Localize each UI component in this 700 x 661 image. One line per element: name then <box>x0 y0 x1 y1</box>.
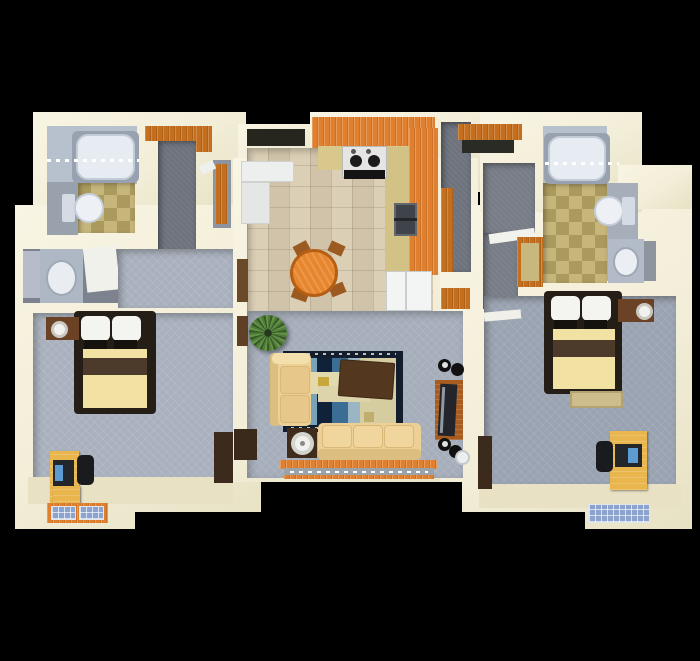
sofa-sectional-cushion-1 <box>280 366 310 394</box>
sofa-main-front <box>318 449 421 460</box>
speaker-2 <box>451 363 464 376</box>
stove-burner-1 <box>350 155 362 167</box>
coffee-table <box>338 359 395 400</box>
vanity-right-sink <box>613 247 639 277</box>
hall-right-shelf-shadow <box>462 140 514 153</box>
bed-left-stripe <box>83 358 147 375</box>
doormat-left-1 <box>51 506 76 520</box>
bed-right-rug <box>570 391 623 408</box>
bed-right-spread <box>553 329 615 389</box>
wall-art-brown <box>237 316 248 346</box>
end-table-lamp-center <box>300 441 305 446</box>
wardrobe-right <box>478 436 492 489</box>
wall-cabinet-brown <box>237 259 248 302</box>
rug-accent-2 <box>364 412 374 422</box>
shoe-cabinet-dark <box>234 429 257 460</box>
dresser-left <box>214 432 233 483</box>
doormat-left-2 <box>79 506 104 520</box>
bed-left-fold-2 <box>114 340 137 349</box>
vanity-right-side <box>644 241 656 281</box>
speaker-cone-1 <box>442 362 448 368</box>
laundry-shelf-low <box>441 288 470 309</box>
toilet-left-bowl <box>74 193 104 223</box>
closet-notch-interior <box>247 129 305 146</box>
kitchen-counter-orange-right <box>409 128 438 275</box>
fridge <box>386 271 432 311</box>
monitor-right-screen <box>628 448 638 463</box>
cutout-bottom-left <box>135 512 261 530</box>
vanity-side-panel <box>23 251 40 298</box>
doormat-right <box>588 504 650 523</box>
bed-left-pillow-2 <box>112 316 141 341</box>
stove-knob-2 <box>366 149 371 154</box>
speaker-ball <box>455 450 470 465</box>
vanity-sink <box>46 260 77 296</box>
dining-table <box>290 249 338 297</box>
bed-right-pillow-1 <box>551 296 580 321</box>
bed-left-fold-1 <box>84 340 107 349</box>
closet-left-walkin-floor <box>158 140 196 252</box>
shower-rod-right <box>545 162 619 165</box>
balcony-ledge-dashes <box>290 471 428 473</box>
toilet-right-tank <box>622 197 635 225</box>
closet-left-shelf-side <box>196 126 212 152</box>
bed-right-stripe <box>553 340 615 357</box>
bed-right-fold-2 <box>584 320 607 329</box>
sofa-main-cushion-3 <box>384 425 414 448</box>
sofa-sectional-cushion-2 <box>280 395 310 423</box>
balcony-wood-low <box>284 475 434 479</box>
stove-front <box>344 170 385 179</box>
sofa-sectional-arm <box>272 353 310 364</box>
kitchen-sink-divider <box>394 218 417 221</box>
desk-chair-right <box>596 441 613 472</box>
toilet-right-bowl <box>594 196 624 226</box>
vanity-door-leaf <box>83 245 120 292</box>
hall-left-floor <box>118 249 233 308</box>
kitchen-counter-white-top <box>241 161 294 182</box>
cutout-corner-right <box>440 482 462 513</box>
stove-burner-2 <box>368 155 380 167</box>
hall-right-floor-upper <box>483 163 535 233</box>
shower-rod-left <box>47 159 139 162</box>
bedroom-right-floor-tan <box>479 484 681 508</box>
speaker-cone-3 <box>442 441 448 447</box>
lamp-left <box>51 321 68 338</box>
hall-right-shelf <box>458 124 522 140</box>
bath-right-cabinet-inner <box>521 243 539 281</box>
lamp-right <box>636 303 653 320</box>
kitchen-counter-white-side <box>241 182 270 224</box>
desk-chair-left <box>77 455 94 485</box>
laundry-shelf-strip <box>441 188 453 272</box>
bed-right-fold-1 <box>554 320 577 329</box>
floorplan-stage <box>0 0 700 661</box>
stove-knob-1 <box>351 149 356 154</box>
bed-right-pillow-2 <box>582 296 611 321</box>
sofa-main-cushion-2 <box>353 425 383 448</box>
bathtub-left <box>76 134 135 180</box>
bathtub-right <box>548 136 606 181</box>
bath-right-tile-floor <box>543 183 607 283</box>
cutout-bottom-right <box>440 512 585 530</box>
monitor-left-screen <box>55 465 63 481</box>
sofa-main-cushion-1 <box>322 425 352 448</box>
closet-b-shelf <box>215 164 228 224</box>
plant <box>249 315 287 351</box>
bed-left-pillow-1 <box>81 316 110 341</box>
fridge-divider <box>405 271 407 311</box>
